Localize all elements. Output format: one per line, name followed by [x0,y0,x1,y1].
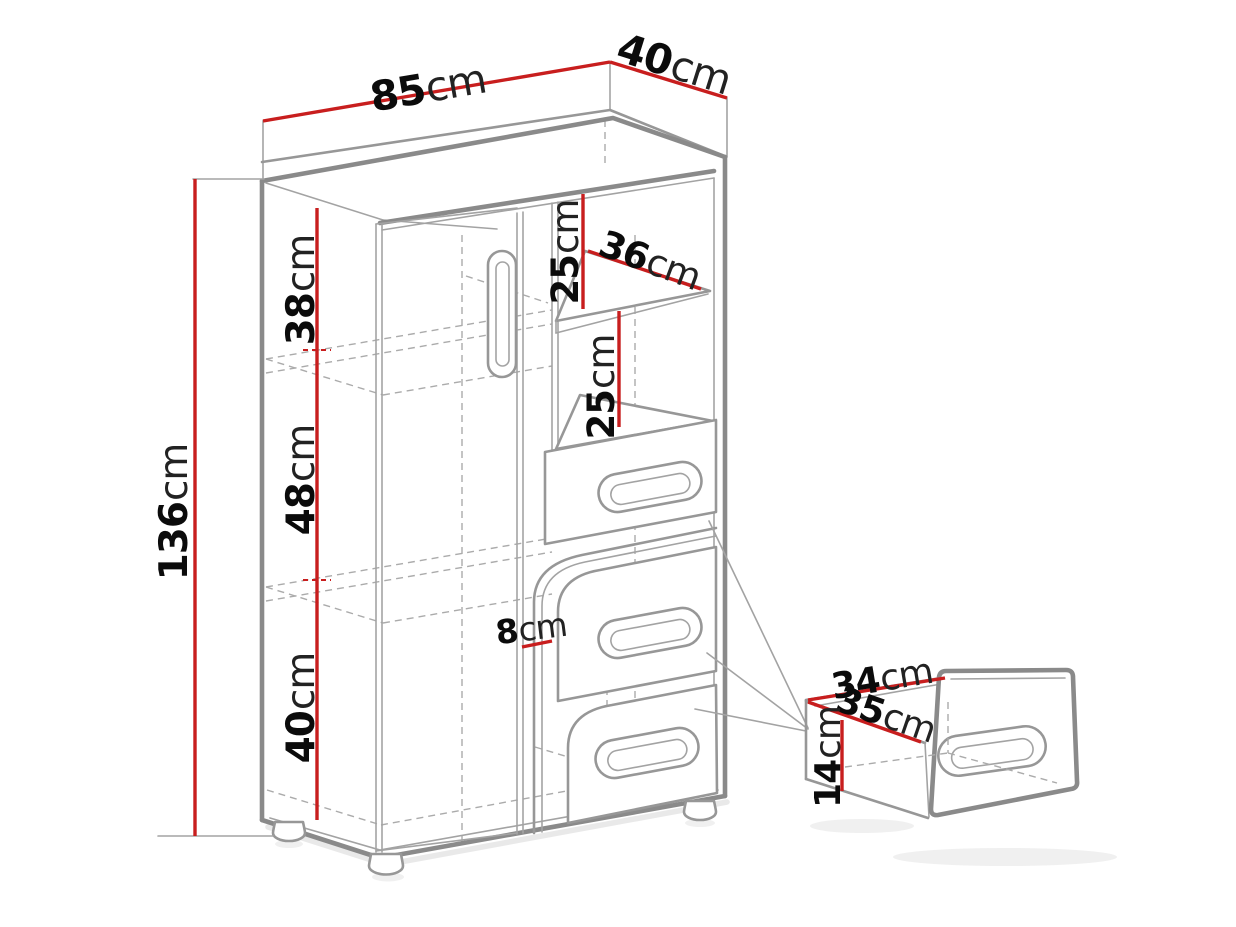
dim-label-drawer-height-14: 14cm [808,706,849,808]
dim-label-depth-40: 40cm [611,24,737,105]
diagram-svg: 85cm 40cm 136cm 38cm 48cm 40cm 25cm 36cm… [0,0,1236,927]
drawer-detail-shadow [810,819,914,833]
drawer-side-front-edge [925,743,929,817]
cabinet-foot [273,822,305,841]
hidden-shelf-depth-edge [266,587,383,623]
dim-label-section-38: 38cm [279,235,324,346]
leader-line-drawer2 [707,653,808,729]
dimension-labels: 85cm 40cm 136cm 38cm 48cm 40cm 25cm 36cm… [152,24,941,808]
foot-shape [369,854,403,875]
foot-shape [684,801,716,820]
hidden-shelf-edge [266,538,552,587]
hidden-shelf-edge [266,552,552,601]
dim-label-niche-upper-25: 25cm [544,200,587,305]
cabinet-shadow-front [384,802,727,865]
handle-outer [488,251,516,377]
cabinet-door [376,208,523,852]
hidden-shelf-edge [383,366,552,395]
foot-shape [273,822,305,841]
top-panel-bottom-edge [262,110,722,162]
drawer-detail-shadow [893,848,1117,866]
door-handle [488,251,516,377]
dim-label-width-85: 85cm [367,55,490,122]
drawer-front-inner-edge [951,678,1065,679]
top-face-depth-edge [266,183,383,220]
furniture-dimension-diagram: 85cm 40cm 136cm 38cm 48cm 40cm 25cm 36cm… [0,0,1236,927]
cabinet-foot [684,801,716,820]
dim-label-height-136: 136cm [152,444,197,581]
dim-label-section-48: 48cm [279,425,324,536]
dim-label-niche-lower-25: 25cm [580,335,623,440]
dim-label-section-40: 40cm [279,653,324,764]
cabinet-foot [369,854,403,875]
hidden-shelf-depth-edge [266,359,383,395]
floor-hidden-edge [267,790,381,825]
